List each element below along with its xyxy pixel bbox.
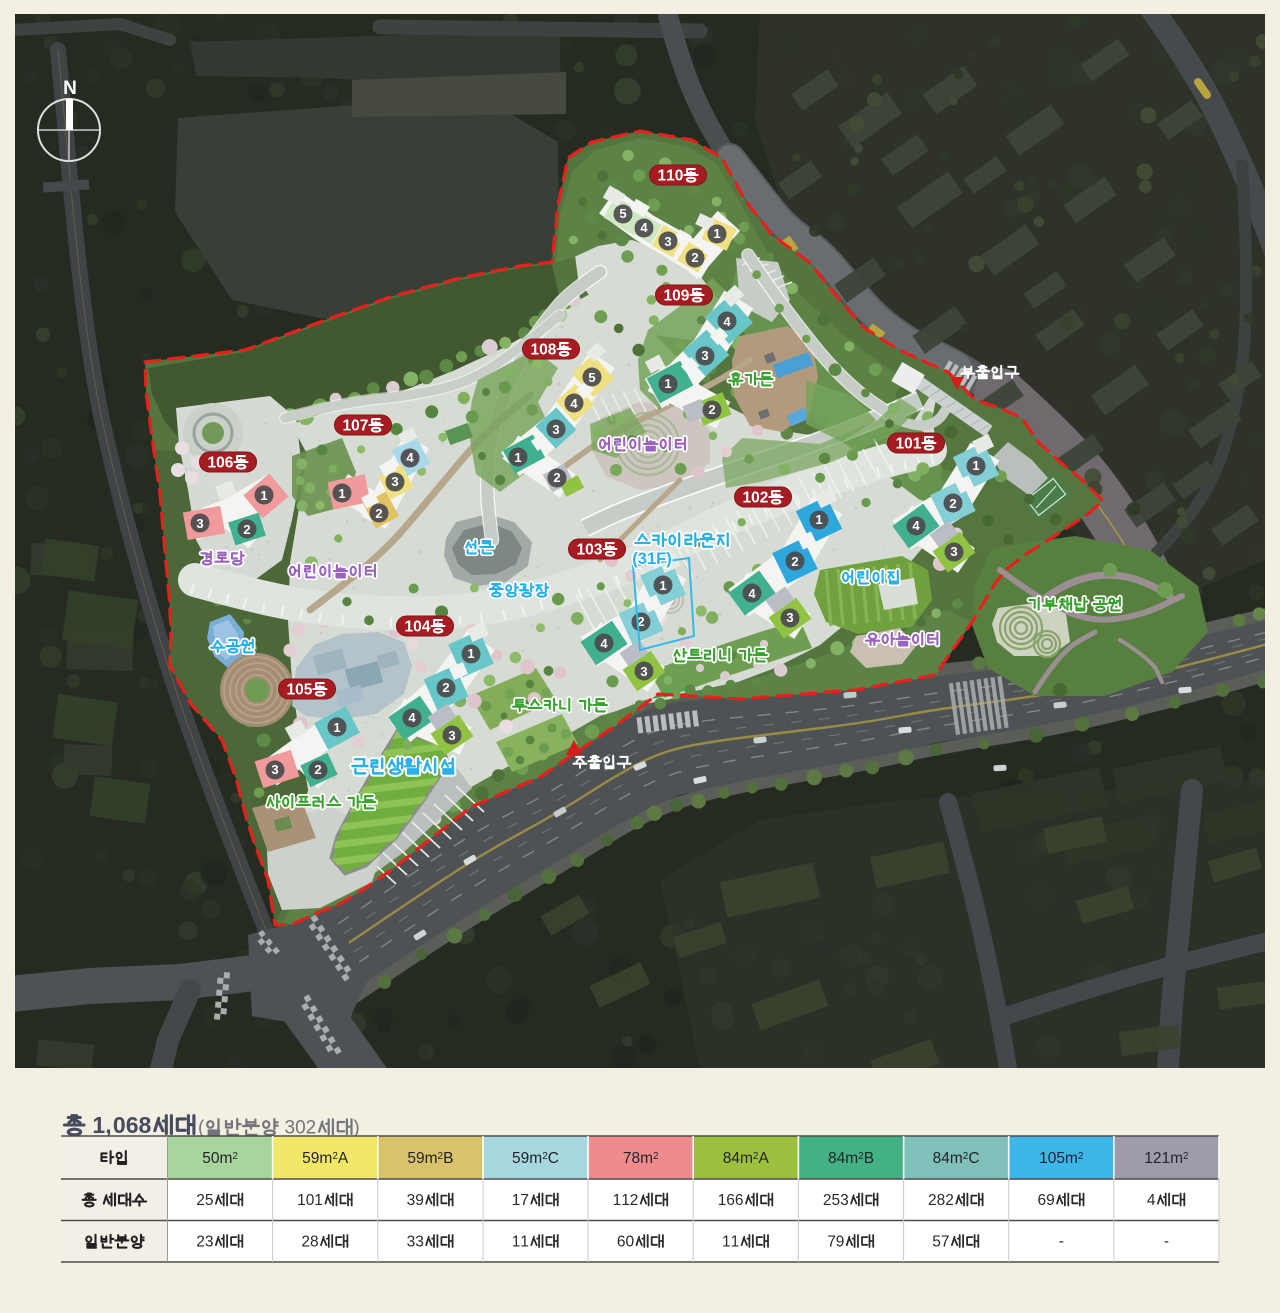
svg-text:1: 1: [731, 1234, 740, 1251]
svg-text:2: 2: [375, 506, 382, 521]
svg-text:84m2A: 84m2A: [723, 1150, 770, 1167]
svg-text:1: 1: [520, 1234, 529, 1251]
svg-text:6: 6: [126, 1112, 139, 1138]
svg-text:1: 1: [314, 1192, 323, 1209]
svg-text:1: 1: [333, 720, 340, 735]
svg-text:1: 1: [514, 450, 521, 465]
svg-text:2: 2: [301, 1234, 310, 1251]
svg-text:,: ,: [105, 1112, 111, 1138]
svg-text:9: 9: [836, 1234, 845, 1251]
svg-text:6: 6: [1038, 1192, 1047, 1209]
svg-text:8: 8: [937, 1192, 946, 1209]
svg-text:5: 5: [932, 1234, 941, 1251]
svg-text:121m2: 121m2: [1144, 1150, 1189, 1167]
svg-text:2: 2: [442, 680, 449, 695]
svg-text:3: 3: [701, 348, 708, 363]
svg-text:1: 1: [260, 488, 267, 503]
svg-text:2: 2: [553, 470, 560, 485]
svg-text:3: 3: [594, 541, 603, 558]
svg-text:3: 3: [415, 1234, 424, 1251]
svg-text:3: 3: [786, 610, 793, 625]
svg-text:0: 0: [216, 454, 225, 471]
svg-text:4: 4: [406, 450, 414, 465]
svg-text:0: 0: [672, 287, 681, 304]
svg-text:1: 1: [722, 1234, 731, 1251]
svg-text:2: 2: [196, 1234, 205, 1251]
svg-text:4: 4: [912, 518, 920, 533]
svg-text:0: 0: [904, 435, 913, 452]
svg-text:0: 0: [585, 541, 594, 558]
svg-text:2: 2: [928, 1192, 937, 1209]
svg-text:-: -: [1164, 1233, 1169, 1250]
svg-text:3: 3: [205, 1234, 214, 1251]
svg-text:0: 0: [751, 489, 760, 506]
svg-text:4: 4: [422, 618, 431, 635]
svg-text:9: 9: [681, 287, 690, 304]
svg-text:3: 3: [638, 550, 647, 568]
svg-text:6: 6: [617, 1234, 626, 1251]
svg-text:5: 5: [205, 1192, 214, 1209]
svg-text:7: 7: [520, 1192, 529, 1209]
svg-text:7: 7: [827, 1234, 836, 1251]
svg-text:84m2C: 84m2C: [933, 1150, 980, 1167]
svg-text:0: 0: [675, 167, 684, 184]
svg-text:59m2B: 59m2B: [407, 1150, 453, 1167]
svg-text:3: 3: [664, 234, 671, 249]
svg-text:2: 2: [823, 1192, 832, 1209]
svg-text:1: 1: [338, 486, 345, 501]
svg-text:1: 1: [297, 1192, 306, 1209]
svg-text:1: 1: [664, 376, 671, 391]
svg-text:3: 3: [840, 1192, 849, 1209]
svg-text:6: 6: [726, 1192, 735, 1209]
svg-text:1: 1: [718, 1192, 727, 1209]
svg-text:5: 5: [619, 206, 626, 221]
svg-text:3: 3: [640, 664, 647, 679]
svg-text:7: 7: [941, 1234, 950, 1251]
svg-text:0: 0: [113, 1112, 126, 1138]
svg-text:4: 4: [408, 710, 416, 725]
svg-text:4: 4: [640, 220, 648, 235]
svg-text:3: 3: [448, 728, 455, 743]
svg-text:3: 3: [271, 762, 278, 777]
svg-text:0: 0: [295, 681, 304, 698]
svg-text:2: 2: [196, 1192, 205, 1209]
svg-text:1: 1: [613, 1192, 622, 1209]
svg-text:4: 4: [723, 314, 731, 329]
svg-text:2: 2: [945, 1192, 954, 1209]
svg-text:1: 1: [815, 512, 822, 527]
svg-text:1: 1: [713, 226, 720, 241]
svg-text:6: 6: [225, 454, 234, 471]
svg-text:1: 1: [621, 1192, 630, 1209]
svg-text:59m2C: 59m2C: [512, 1150, 559, 1167]
svg-text:2: 2: [791, 554, 798, 569]
svg-text:-: -: [1059, 1233, 1064, 1250]
svg-text:1: 1: [467, 646, 474, 661]
svg-text:8: 8: [548, 341, 557, 358]
svg-text:0: 0: [351, 417, 360, 434]
svg-text:2: 2: [314, 762, 321, 777]
svg-text:0: 0: [413, 618, 422, 635]
svg-text:5: 5: [304, 681, 313, 698]
svg-text:9: 9: [415, 1192, 424, 1209]
svg-text:3: 3: [391, 474, 398, 489]
svg-text:1: 1: [92, 1112, 105, 1138]
svg-text:3: 3: [407, 1192, 416, 1209]
svg-text:1: 1: [512, 1234, 521, 1251]
svg-text:1: 1: [659, 578, 666, 593]
svg-text:8: 8: [139, 1112, 152, 1138]
svg-text:105m2: 105m2: [1039, 1150, 1084, 1167]
svg-text:6: 6: [735, 1192, 744, 1209]
svg-text:F: F: [656, 550, 666, 568]
svg-text:2: 2: [691, 250, 698, 265]
svg-text:7: 7: [360, 417, 369, 434]
svg-text:5: 5: [588, 370, 595, 385]
svg-text:N: N: [63, 78, 77, 99]
svg-text:4: 4: [1147, 1192, 1156, 1209]
svg-text:3: 3: [196, 516, 203, 531]
svg-text:2: 2: [630, 1192, 639, 1209]
svg-text:0: 0: [626, 1234, 635, 1251]
svg-text:2: 2: [243, 522, 250, 537]
svg-text:5: 5: [832, 1192, 841, 1209]
svg-text:4: 4: [570, 396, 578, 411]
svg-text:3: 3: [407, 1234, 416, 1251]
svg-text:1: 1: [647, 550, 656, 568]
svg-text:2: 2: [760, 489, 769, 506]
svg-text:1: 1: [913, 435, 922, 452]
svg-text:3: 3: [950, 544, 957, 559]
svg-text:3: 3: [552, 422, 559, 437]
svg-text:): ): [666, 550, 672, 568]
svg-text:84m2B: 84m2B: [828, 1150, 874, 1167]
svg-text:2: 2: [708, 402, 715, 417]
svg-text:4: 4: [600, 636, 608, 651]
svg-text:4: 4: [748, 586, 756, 601]
svg-text:9: 9: [1046, 1192, 1055, 1209]
svg-text:2: 2: [949, 496, 956, 511]
svg-text:0: 0: [539, 341, 548, 358]
svg-text:59m2A: 59m2A: [302, 1150, 349, 1167]
svg-text:8: 8: [310, 1234, 319, 1251]
svg-text:1: 1: [972, 458, 979, 473]
svg-text:1: 1: [512, 1192, 521, 1209]
